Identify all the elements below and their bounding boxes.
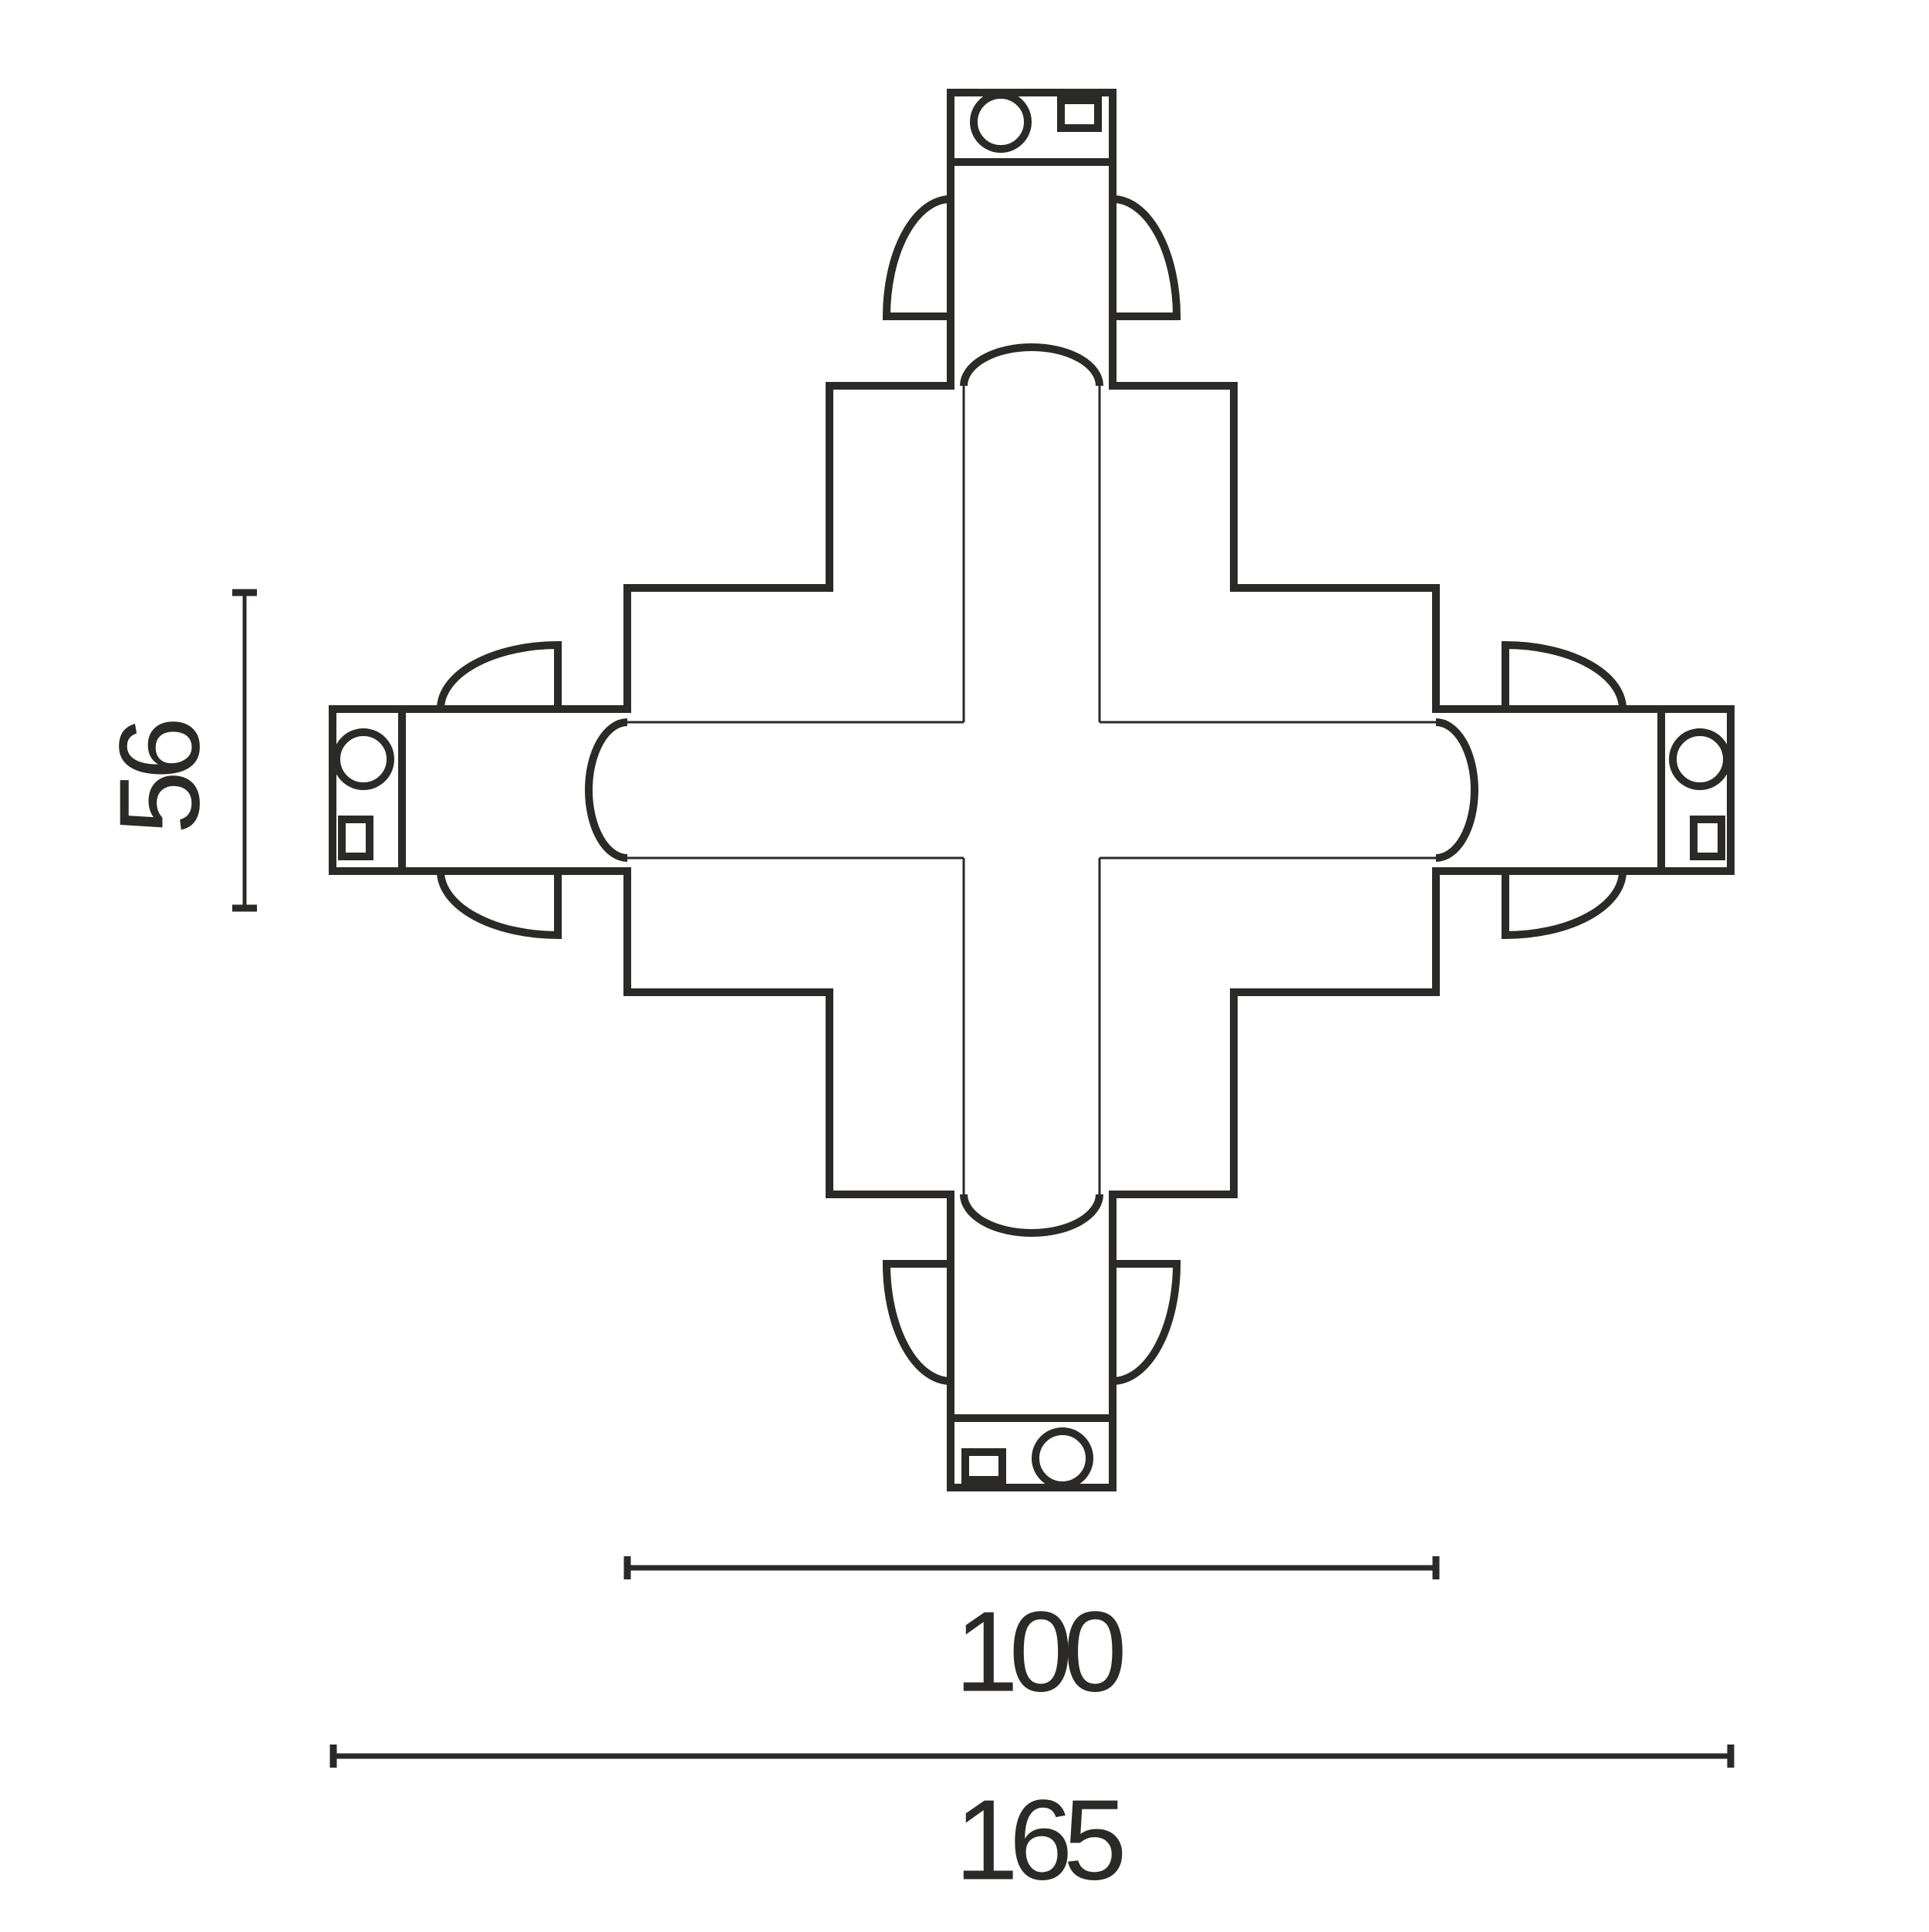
tab-left-bottom (441, 867, 558, 935)
inner-track-cross (627, 386, 1436, 1194)
cap-circle-bottom (1035, 1431, 1089, 1485)
track-bump-top (964, 347, 1100, 386)
tab-top-right (1109, 199, 1177, 316)
tab-right-top (1505, 645, 1623, 713)
dimension-100: 100 (627, 1556, 1436, 1716)
cap-square-right (1694, 819, 1721, 856)
cap-circle-top (974, 95, 1028, 149)
cap-contact-circles (336, 95, 1727, 1485)
inner-track-end-bumps (589, 347, 1475, 1233)
connector-outline (333, 93, 1731, 1488)
tab-left-top (441, 645, 558, 713)
track-bump-bottom (964, 1194, 1100, 1233)
drawing-canvas: 56 100 165 (0, 0, 1929, 1932)
dimension-label-100: 100 (955, 1589, 1123, 1716)
track-bump-right (1436, 722, 1475, 858)
cap-circle-right (1673, 732, 1727, 786)
dimension-label-56: 56 (96, 721, 224, 834)
cap-circle-left (336, 732, 390, 786)
tab-top-left (887, 199, 954, 316)
cap-square-left (342, 819, 370, 856)
dimension-56: 56 (96, 593, 258, 908)
technical-drawing: 56 100 165 (0, 0, 1929, 1932)
dimension-165: 165 (333, 1745, 1731, 1904)
tab-right-bottom (1505, 867, 1623, 935)
tab-bottom-left (887, 1264, 954, 1381)
track-bump-left (589, 722, 627, 858)
side-tabs (441, 199, 1623, 1381)
tab-bottom-right (1109, 1264, 1177, 1381)
cap-square-top (1061, 100, 1098, 128)
dimension-label-165: 165 (955, 1777, 1123, 1904)
connector-body (333, 93, 1731, 1488)
cap-terminal-squares (342, 100, 1721, 1480)
cap-square-bottom (965, 1452, 1002, 1480)
